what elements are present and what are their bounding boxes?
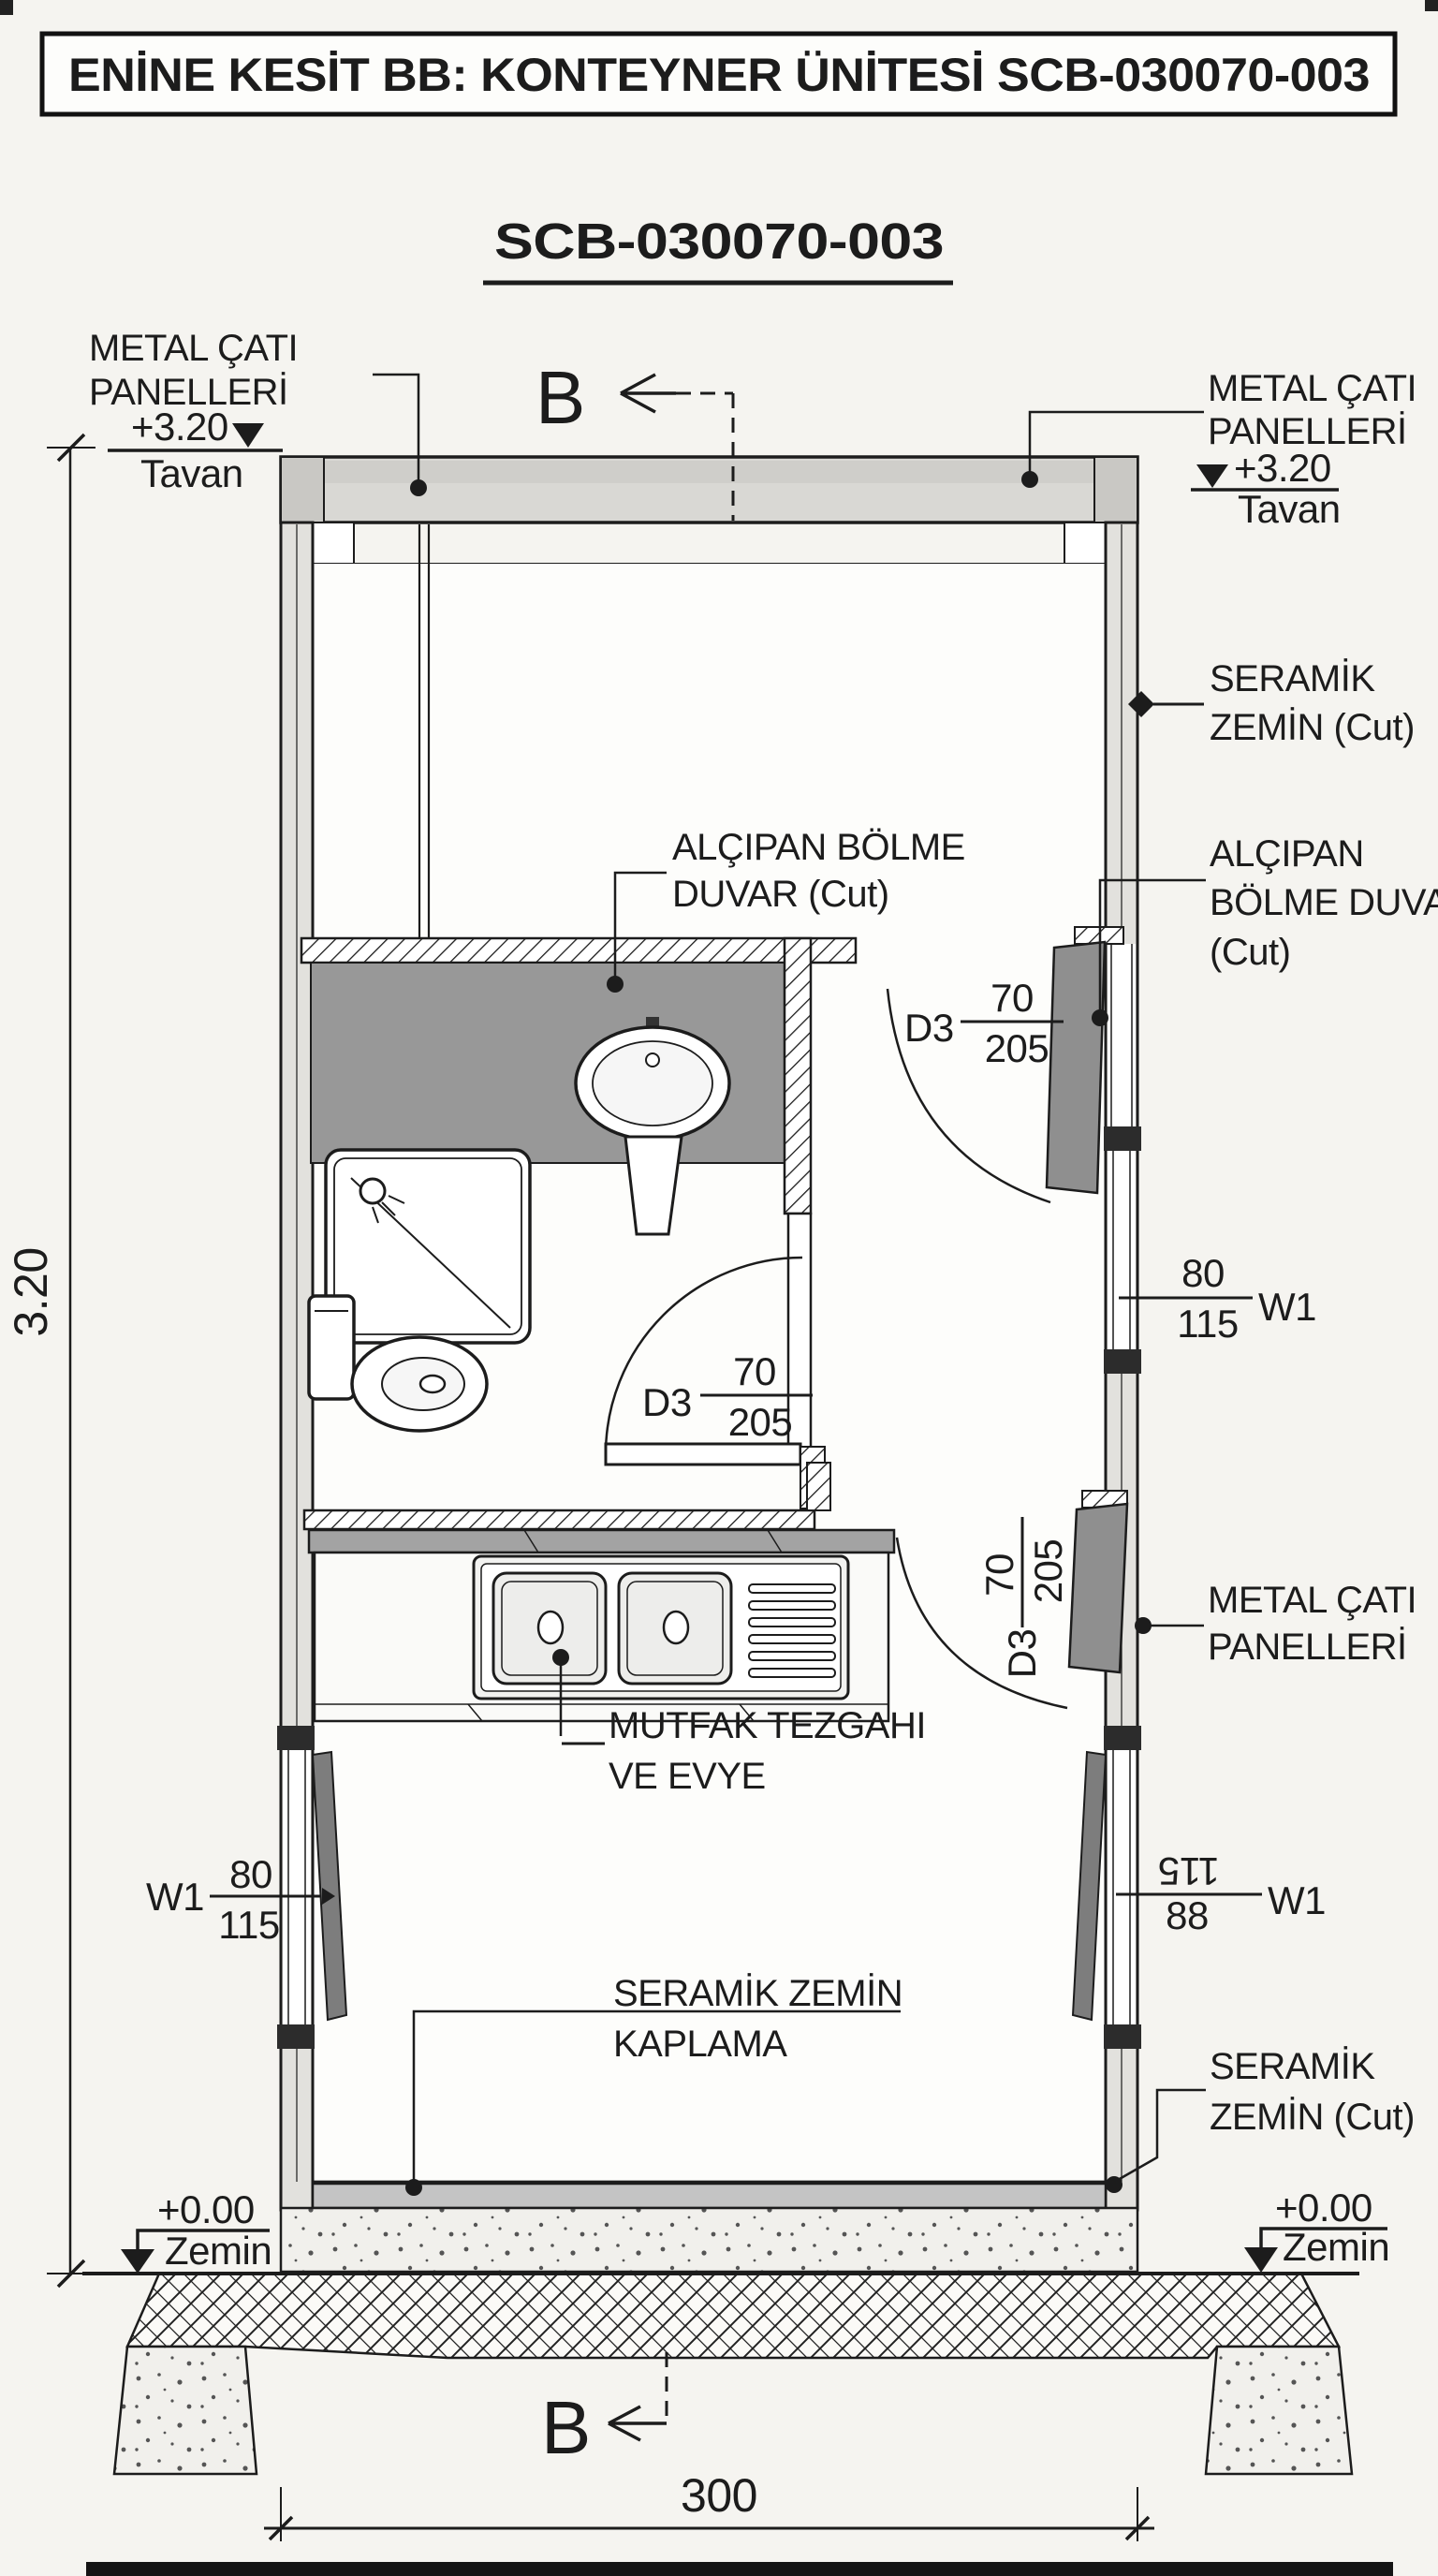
- ceramic-floor: [313, 2182, 1106, 2208]
- callout-text: ALÇIPAN BÖLME: [672, 827, 965, 868]
- dimension-width: 300: [264, 2469, 1154, 2541]
- partition-cut-post: [785, 938, 811, 1214]
- level-triangle-icon: [1196, 464, 1228, 488]
- level-name: Tavan: [140, 451, 243, 495]
- dimension-value: 3.20: [5, 1247, 57, 1336]
- door-width: 70: [990, 976, 1034, 1020]
- door-tag: D3: [642, 1380, 692, 1424]
- leader-dot: [410, 479, 427, 496]
- level-ground-right: +0.00 Zemin: [1244, 2186, 1389, 2273]
- level-triangle-icon: [121, 2249, 154, 2274]
- leader-dot: [607, 976, 624, 993]
- callout-text: SERAMİK: [1210, 2045, 1375, 2087]
- section-letter: B: [536, 356, 585, 439]
- callout-text: METAL ÇATI: [89, 328, 298, 369]
- level-name: Tavan: [1238, 487, 1341, 531]
- level-ground-left: +0.00 Zemin: [121, 2187, 271, 2274]
- window-height: 115: [1177, 1302, 1238, 1346]
- window-height: 115: [218, 1903, 279, 1947]
- level-triangle-icon: [232, 423, 264, 448]
- dimension-value: 300: [681, 2469, 757, 2522]
- concrete-slab: [281, 2208, 1137, 2272]
- window-num-flipped: 115: [1158, 1849, 1219, 1893]
- drawing-code: SCB-030070-003: [494, 213, 944, 270]
- level-value: +0.00: [1275, 2186, 1372, 2230]
- callout-text: VE EVYE: [609, 1756, 766, 1797]
- double-sink: [474, 1556, 848, 1699]
- level-ceiling-left: +3.20 Tavan: [108, 405, 283, 495]
- shower-head-icon: [360, 1179, 385, 1203]
- countertop-edge: [309, 1530, 894, 1553]
- level-name: Zemin: [165, 2229, 271, 2273]
- level-value: +3.20: [1234, 446, 1331, 490]
- callout-partition-right: ALÇIPAN BÖLME DUVAR (Cut): [1092, 833, 1438, 1026]
- leader-dot: [1135, 1617, 1152, 1634]
- foundation: [82, 2208, 1359, 2474]
- callout-text: BÖLME DUVAR: [1210, 882, 1438, 923]
- callout-text: ZEMİN (Cut): [1210, 706, 1415, 748]
- level-ceiling-right: +3.20 Tavan: [1191, 446, 1341, 531]
- door-width: 70: [977, 1553, 1021, 1597]
- callout-text: ZEMİN (Cut): [1210, 2096, 1415, 2138]
- partition-cut-band: [301, 938, 856, 963]
- callout-text: ALÇIPAN: [1210, 833, 1364, 875]
- callout-text: PANELLERİ: [1208, 1626, 1407, 1668]
- callout-text: MUTFAK TEZGAHI: [609, 1705, 926, 1746]
- callout-ceramic-cut-upper: SERAMİK ZEMİN (Cut): [1128, 657, 1415, 748]
- leader-dot: [1106, 2176, 1123, 2193]
- shower-tray: [326, 1150, 530, 1343]
- window-w1-right-upper: [1104, 1126, 1141, 1374]
- level-value: +0.00: [157, 2187, 255, 2231]
- callout-text: SERAMİK: [1210, 657, 1375, 699]
- dimension-height: 3.20: [5, 434, 95, 2287]
- label-window-w1-right-upper: 80 115 W1: [1119, 1251, 1316, 1346]
- footing-left: [114, 2347, 257, 2474]
- callout-text: SERAMİK ZEMİN: [613, 1972, 902, 2014]
- level-name: Zemin: [1283, 2225, 1389, 2269]
- section-marker-bottom: B: [541, 2352, 667, 2469]
- callout-text: KAPLAMA: [613, 2024, 787, 2065]
- scan-edge-bar: [86, 2562, 1393, 2576]
- section-letter: B: [541, 2386, 591, 2469]
- section-arrow-icon: [609, 2407, 667, 2440]
- callout-ceramic-cut-lower: SERAMİK ZEMİN (Cut): [1106, 2045, 1415, 2193]
- door-height: 205: [728, 1400, 793, 1444]
- leader-dot: [1021, 471, 1038, 488]
- window-tag: W1: [146, 1875, 204, 1919]
- window-tag: W1: [1258, 1285, 1316, 1329]
- title-block: ENİNE KESİT BB: KONTEYNER ÜNİTESİ SCB-03…: [42, 34, 1395, 114]
- door-tag: D3: [1000, 1629, 1044, 1679]
- label-window-w1-right-lower: 115 88 W1: [1116, 1849, 1326, 1937]
- section-arrow-icon: [621, 375, 676, 412]
- callout-roof-panels-right-lower: METAL ÇATI PANELLERİ: [1135, 1580, 1416, 1668]
- leader-dot: [405, 2179, 422, 2196]
- leader-dot: [552, 1649, 569, 1666]
- section-drawing: ENİNE KESİT BB: KONTEYNER ÜNİTESİ SCB-03…: [0, 0, 1438, 2576]
- window-den: 88: [1166, 1893, 1209, 1937]
- callout-text: METAL ÇATI: [1208, 368, 1416, 409]
- callout-text: (Cut): [1210, 932, 1290, 973]
- ground-hatch-band: [127, 2274, 1339, 2358]
- callout-text: DUVAR (Cut): [672, 874, 889, 915]
- scanned-drawing-page: ENİNE KESİT BB: KONTEYNER ÜNİTESİ SCB-03…: [0, 0, 1438, 2576]
- callout-text: METAL ÇATI: [1208, 1580, 1416, 1621]
- door-height: 205: [1026, 1539, 1070, 1604]
- door-tag: D3: [904, 1006, 954, 1050]
- window-width: 80: [1181, 1251, 1225, 1295]
- level-triangle-icon: [1244, 2247, 1278, 2273]
- window-width: 80: [229, 1852, 272, 1896]
- footing-right: [1206, 2347, 1352, 2474]
- scan-corner-mark: [1425, 0, 1438, 11]
- door-width: 70: [733, 1349, 776, 1393]
- window-tag: W1: [1268, 1878, 1326, 1922]
- scan-corner-mark: [0, 0, 13, 15]
- door-height: 205: [985, 1026, 1049, 1070]
- page-title: ENİNE KESİT BB: KONTEYNER ÜNİTESİ SCB-03…: [68, 49, 1370, 101]
- door-leaf: [1047, 942, 1105, 1193]
- door-leaf: [1069, 1504, 1127, 1672]
- level-value: +3.20: [131, 405, 228, 449]
- leader-dot: [1092, 1009, 1108, 1026]
- subtitle-block: SCB-030070-003: [483, 213, 953, 283]
